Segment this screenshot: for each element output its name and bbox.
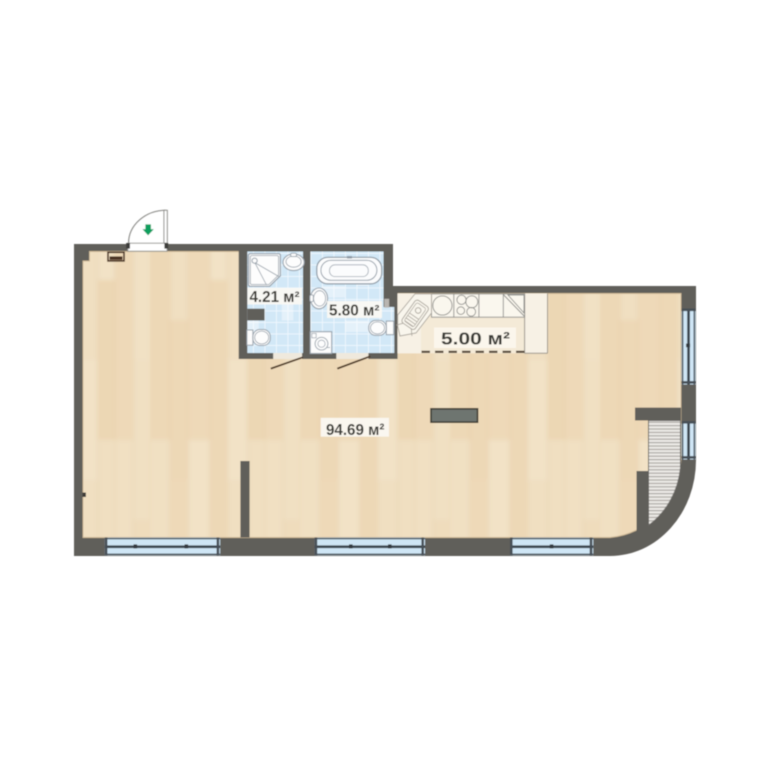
svg-text:5.80 м²: 5.80 м² [329,303,380,320]
svg-text:4.21 м²: 4.21 м² [250,289,300,306]
svg-text:5.00 м²: 5.00 м² [441,328,510,348]
svg-text:94.69 м²: 94.69 м² [326,422,385,439]
